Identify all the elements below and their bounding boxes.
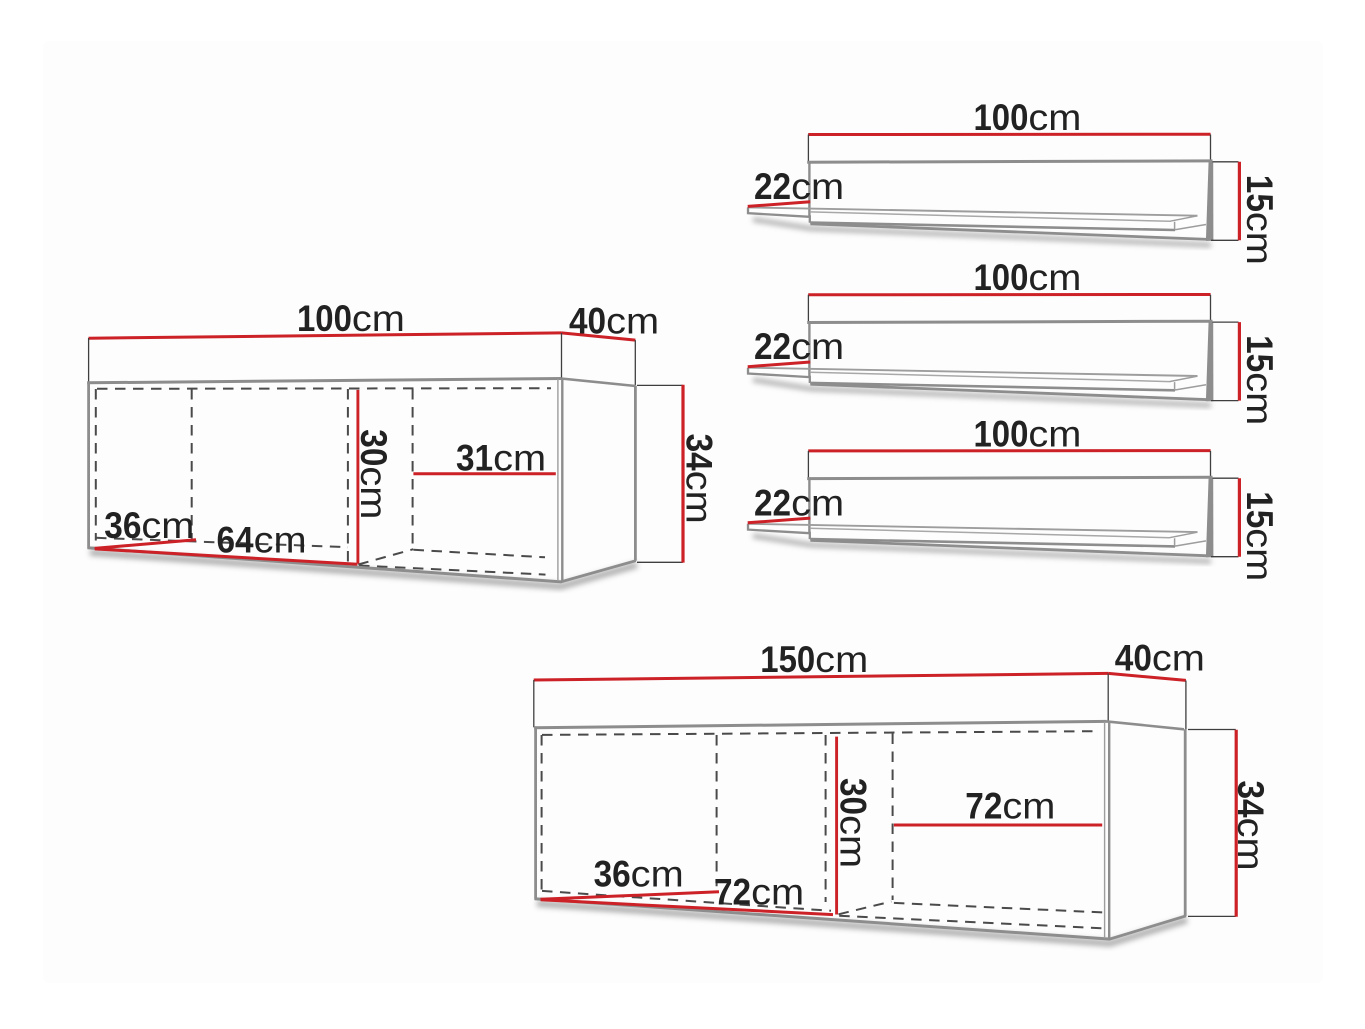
svg-text:40cm: 40cm — [569, 300, 659, 341]
svg-text:72cm: 72cm — [714, 872, 804, 913]
svg-text:30cm: 30cm — [353, 429, 394, 519]
svg-text:22cm: 22cm — [754, 326, 844, 367]
svg-text:22cm: 22cm — [754, 482, 844, 523]
svg-text:34cm: 34cm — [1230, 781, 1271, 871]
svg-text:31cm: 31cm — [456, 437, 546, 478]
svg-text:30cm: 30cm — [833, 778, 874, 868]
svg-text:100cm: 100cm — [974, 257, 1082, 298]
svg-text:40cm: 40cm — [1115, 637, 1205, 678]
svg-text:150cm: 150cm — [760, 639, 868, 680]
svg-text:22cm: 22cm — [754, 166, 844, 207]
svg-text:34cm: 34cm — [679, 434, 720, 524]
svg-text:15cm: 15cm — [1239, 491, 1280, 581]
svg-text:72cm: 72cm — [965, 786, 1055, 827]
svg-text:100cm: 100cm — [974, 97, 1082, 138]
svg-text:100cm: 100cm — [974, 413, 1082, 454]
svg-text:64cm: 64cm — [217, 519, 307, 560]
svg-text:36cm: 36cm — [104, 505, 194, 546]
svg-text:36cm: 36cm — [594, 854, 684, 895]
svg-text:15cm: 15cm — [1239, 175, 1280, 265]
svg-text:15cm: 15cm — [1239, 335, 1280, 425]
svg-text:100cm: 100cm — [297, 298, 405, 339]
